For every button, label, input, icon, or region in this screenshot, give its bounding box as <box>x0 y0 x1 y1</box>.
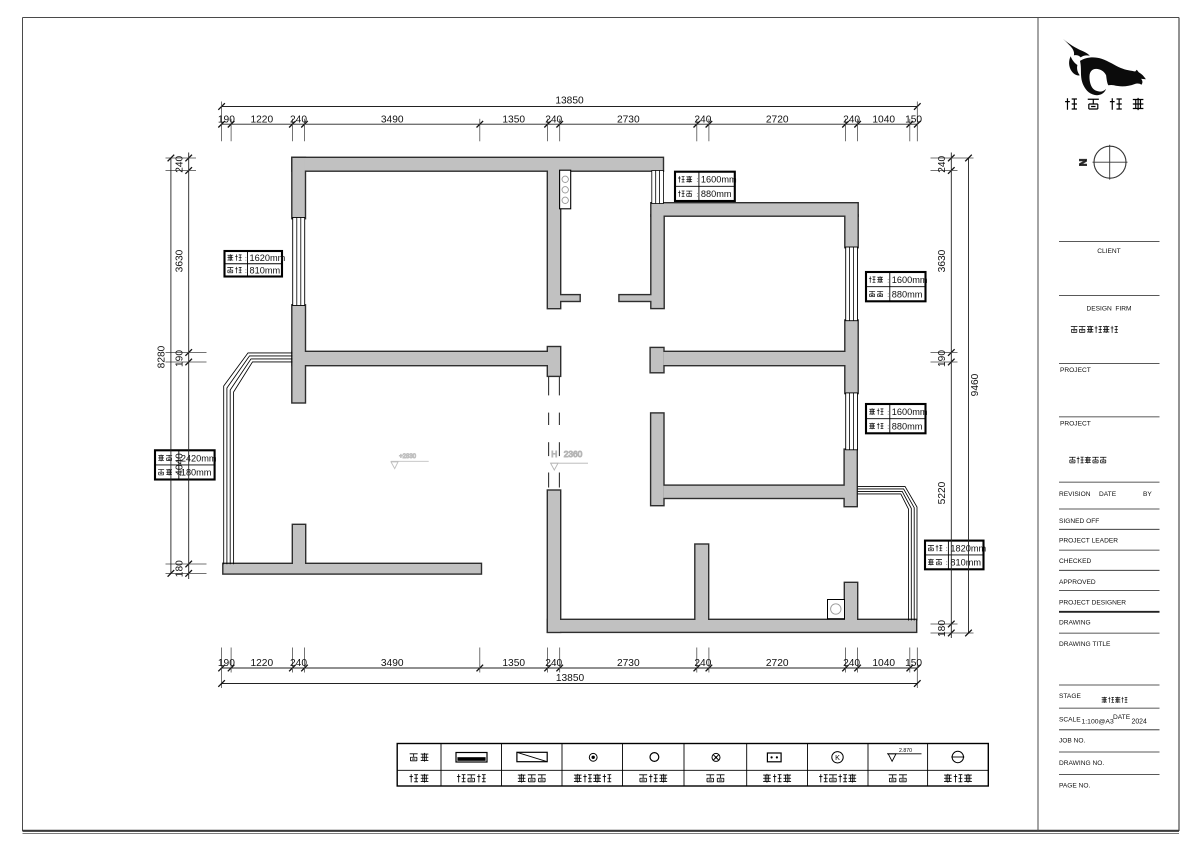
svg-text:240: 240 <box>174 155 185 172</box>
svg-text:2730: 2730 <box>617 114 640 125</box>
svg-text:180mm: 180mm <box>181 468 212 478</box>
svg-text:1:100@A3: 1:100@A3 <box>1082 719 1114 726</box>
svg-text:240: 240 <box>290 658 307 669</box>
svg-text:240: 240 <box>545 658 562 669</box>
svg-text:K: K <box>835 753 840 762</box>
svg-text:SIGNED OFF: SIGNED OFF <box>1059 518 1099 525</box>
svg-text:JOB NO.: JOB NO. <box>1059 738 1086 745</box>
svg-text:BY: BY <box>1143 491 1152 498</box>
svg-text::: : <box>696 177 698 184</box>
svg-text:2.870: 2.870 <box>899 748 912 754</box>
svg-text:190: 190 <box>174 350 185 367</box>
svg-text:880mm: 880mm <box>701 189 732 199</box>
svg-text:240: 240 <box>694 658 711 669</box>
svg-text:180: 180 <box>174 560 185 577</box>
svg-text:N: N <box>1078 159 1090 167</box>
svg-text:PROJECT: PROJECT <box>1060 367 1091 374</box>
svg-text:880mm: 880mm <box>892 421 923 431</box>
svg-text::: : <box>887 409 889 416</box>
svg-text::: : <box>696 191 698 198</box>
svg-text:PROJECT DESIGNER: PROJECT DESIGNER <box>1059 599 1126 606</box>
svg-text:DRAWING NO.: DRAWING NO. <box>1059 760 1104 767</box>
svg-text::: : <box>887 292 889 299</box>
svg-text:SCALE: SCALE <box>1059 716 1081 723</box>
svg-text:150: 150 <box>905 658 922 669</box>
svg-text:H: H <box>551 449 557 459</box>
svg-text::: : <box>946 560 948 567</box>
svg-text:240: 240 <box>843 114 860 125</box>
svg-text:1040: 1040 <box>872 114 895 125</box>
svg-text:1600mm: 1600mm <box>892 275 928 285</box>
svg-text:2024: 2024 <box>1132 719 1147 726</box>
svg-text:240: 240 <box>937 155 948 172</box>
svg-text:810mm: 810mm <box>250 266 281 276</box>
svg-text:8280: 8280 <box>156 345 167 368</box>
svg-text:240: 240 <box>545 114 562 125</box>
svg-text::: : <box>946 546 948 553</box>
svg-text:APPROVED: APPROVED <box>1059 579 1096 586</box>
svg-text:PAGE NO.: PAGE NO. <box>1059 782 1091 789</box>
svg-text:1220: 1220 <box>250 658 273 669</box>
svg-text:STAGE: STAGE <box>1059 693 1081 700</box>
svg-text:2730: 2730 <box>617 658 640 669</box>
svg-text:4040: 4040 <box>174 453 185 476</box>
svg-text::: : <box>887 424 889 431</box>
svg-text:240: 240 <box>290 114 307 125</box>
svg-text:DRAWING: DRAWING <box>1059 620 1091 627</box>
svg-text:190: 190 <box>218 658 235 669</box>
svg-text:PROJECT: PROJECT <box>1060 421 1091 428</box>
svg-text::: : <box>245 268 247 275</box>
svg-text:240: 240 <box>843 658 860 669</box>
svg-text:1040: 1040 <box>872 658 895 669</box>
svg-text:5220: 5220 <box>937 481 948 504</box>
svg-text:CLIENT: CLIENT <box>1097 248 1120 255</box>
svg-text:880mm: 880mm <box>892 289 923 299</box>
svg-text:2360: 2360 <box>564 449 583 459</box>
svg-text:DATE: DATE <box>1113 714 1131 721</box>
svg-text:PROJECT LEADER: PROJECT LEADER <box>1059 537 1118 544</box>
svg-text:3490: 3490 <box>381 114 404 125</box>
svg-text:1620mm: 1620mm <box>250 253 286 263</box>
svg-text:180: 180 <box>937 620 948 637</box>
svg-text:810mm: 810mm <box>950 558 981 568</box>
svg-text:1350: 1350 <box>502 114 525 125</box>
svg-text:REVISION: REVISION <box>1059 491 1091 498</box>
svg-text:3630: 3630 <box>174 249 185 272</box>
svg-text:150: 150 <box>905 114 922 125</box>
svg-text::: : <box>887 277 889 284</box>
svg-text:CHECKED: CHECKED <box>1059 558 1091 565</box>
svg-text:190: 190 <box>218 114 235 125</box>
svg-text:2720: 2720 <box>766 658 789 669</box>
svg-text:1600mm: 1600mm <box>892 407 928 417</box>
svg-text:+2830: +2830 <box>399 454 417 460</box>
svg-text:190: 190 <box>937 350 948 367</box>
svg-text:13850: 13850 <box>555 96 584 107</box>
svg-text:3630: 3630 <box>937 249 948 272</box>
svg-text:DESIGN FIRM: DESIGN FIRM <box>1086 306 1131 313</box>
svg-text:DRAWING TITLE: DRAWING TITLE <box>1059 641 1111 648</box>
svg-text:1220: 1220 <box>250 114 273 125</box>
svg-text:1350: 1350 <box>502 658 525 669</box>
svg-text:2420mm: 2420mm <box>181 453 217 463</box>
svg-text:3490: 3490 <box>381 658 404 669</box>
svg-text:DATE: DATE <box>1099 491 1117 498</box>
svg-text:240: 240 <box>694 114 711 125</box>
svg-text:13850: 13850 <box>556 673 585 684</box>
svg-text:2720: 2720 <box>766 114 789 125</box>
svg-text::: : <box>245 255 247 262</box>
svg-text:1600mm: 1600mm <box>701 175 737 185</box>
svg-text:9460: 9460 <box>970 373 981 396</box>
